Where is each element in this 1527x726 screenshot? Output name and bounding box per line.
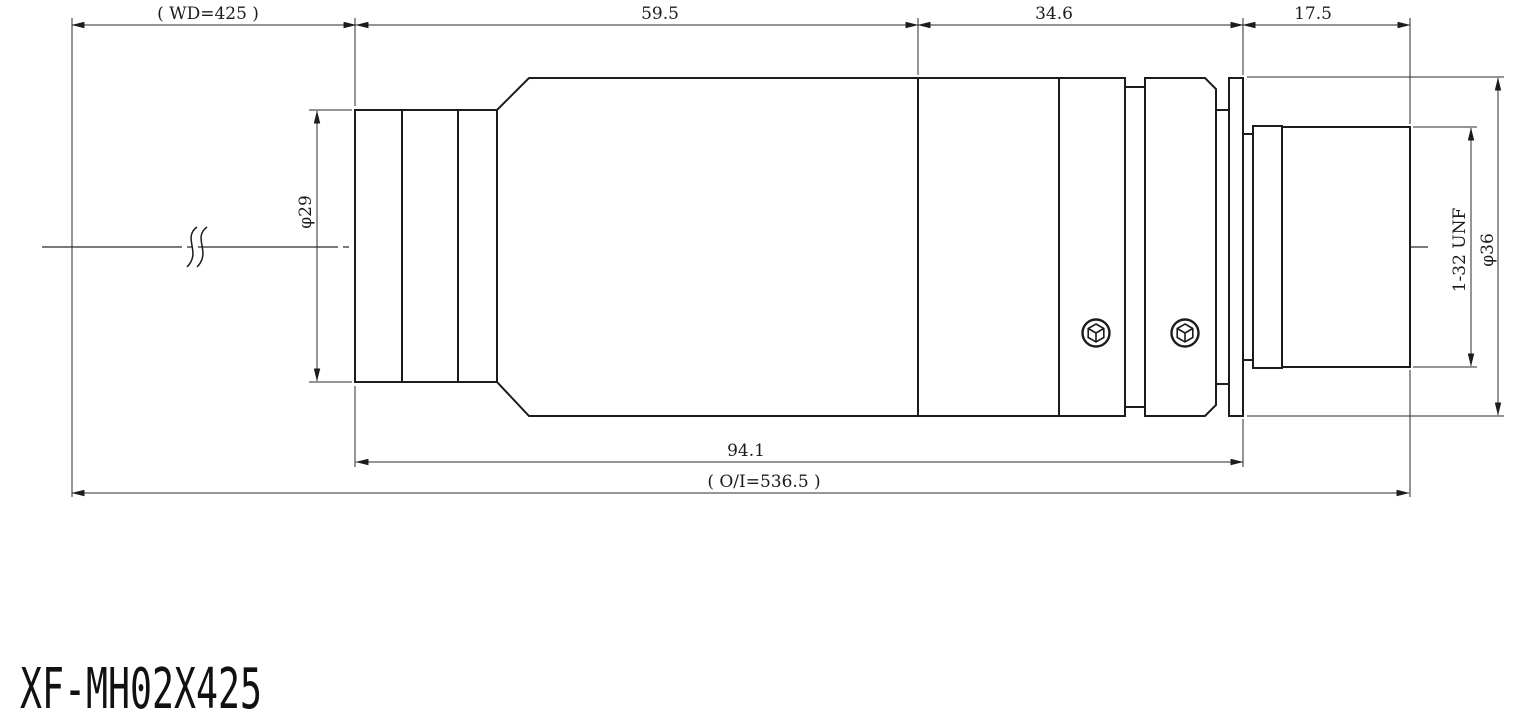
dim-label-front-diameter: φ29 bbox=[296, 195, 316, 229]
dim-label-object-to-image: ( O/I=536.5 ) bbox=[707, 472, 820, 492]
locking-ring bbox=[1145, 78, 1216, 416]
drawing-canvas: ( WD=425 ) 59.5 34.6 17.5 94.1 ( O/I=536… bbox=[0, 0, 1527, 726]
dim-label-max-diameter: φ36 bbox=[1478, 233, 1498, 267]
flange-step bbox=[1243, 134, 1253, 360]
lens-technical-drawing: ( WD=425 ) 59.5 34.6 17.5 94.1 ( O/I=536… bbox=[0, 0, 1527, 726]
mount-flange bbox=[1229, 78, 1243, 416]
neck-groove bbox=[1125, 87, 1145, 407]
dim-label-front-section: 59.5 bbox=[641, 4, 679, 24]
dim-label-barrel-length: 94.1 bbox=[727, 441, 765, 461]
part-number-title: XF-MH02X425 bbox=[20, 657, 262, 722]
dim-label-mid-section: 34.6 bbox=[1035, 4, 1073, 24]
dim-label-mount-thread: 1-32 UNF bbox=[1450, 207, 1470, 292]
rear-neck bbox=[1216, 110, 1229, 384]
main-barrel bbox=[497, 78, 1125, 416]
dim-label-working-distance: ( WD=425 ) bbox=[157, 4, 259, 24]
thread-shoulder-ring bbox=[1253, 126, 1282, 368]
front-barrel bbox=[355, 110, 497, 382]
mount-thread-barrel bbox=[1282, 127, 1410, 367]
dim-label-rear-section: 17.5 bbox=[1294, 4, 1332, 24]
